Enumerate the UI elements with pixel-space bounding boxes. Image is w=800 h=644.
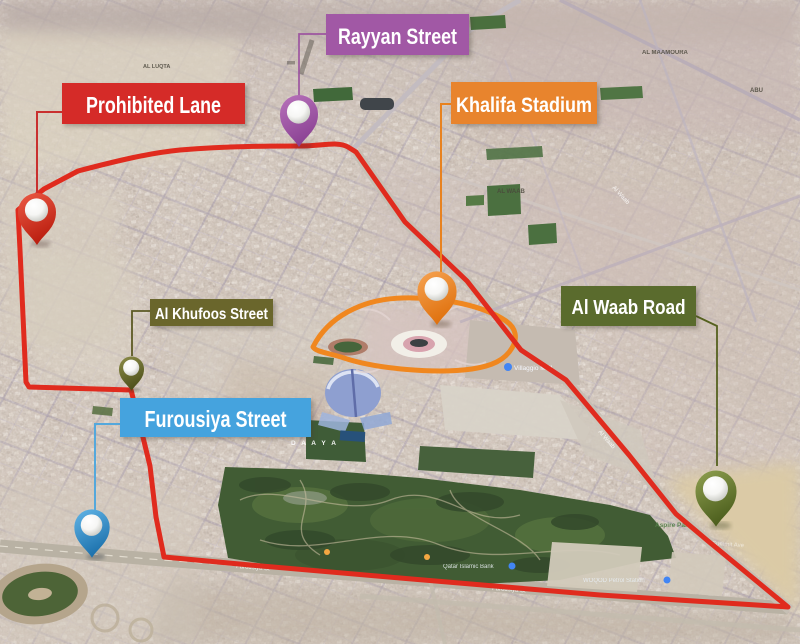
svg-text:AL LUQTA: AL LUQTA xyxy=(143,64,170,70)
svg-text:Prohibited Lane: Prohibited Lane xyxy=(86,92,221,118)
svg-text:D A A Y A: D A A Y A xyxy=(291,440,338,447)
svg-text:Al Waab Road: Al Waab Road xyxy=(572,297,686,319)
svg-text:Qatar Islamic Bank: Qatar Islamic Bank xyxy=(443,564,495,570)
svg-text:Khalifa Stadium: Khalifa Stadium xyxy=(456,94,592,117)
svg-text:Rayyan Street: Rayyan Street xyxy=(338,24,458,49)
svg-text:AL MAAMOURA: AL MAAMOURA xyxy=(642,50,689,56)
svg-text:AL WAAB: AL WAAB xyxy=(497,189,526,195)
svg-text:ABU: ABU xyxy=(750,88,763,94)
svg-text:Furousiya Street: Furousiya Street xyxy=(145,406,287,432)
svg-text:Al Khufoos Street: Al Khufoos Street xyxy=(155,306,268,323)
svg-text:WOQOD Petrol Station: WOQOD Petrol Station xyxy=(583,578,645,584)
